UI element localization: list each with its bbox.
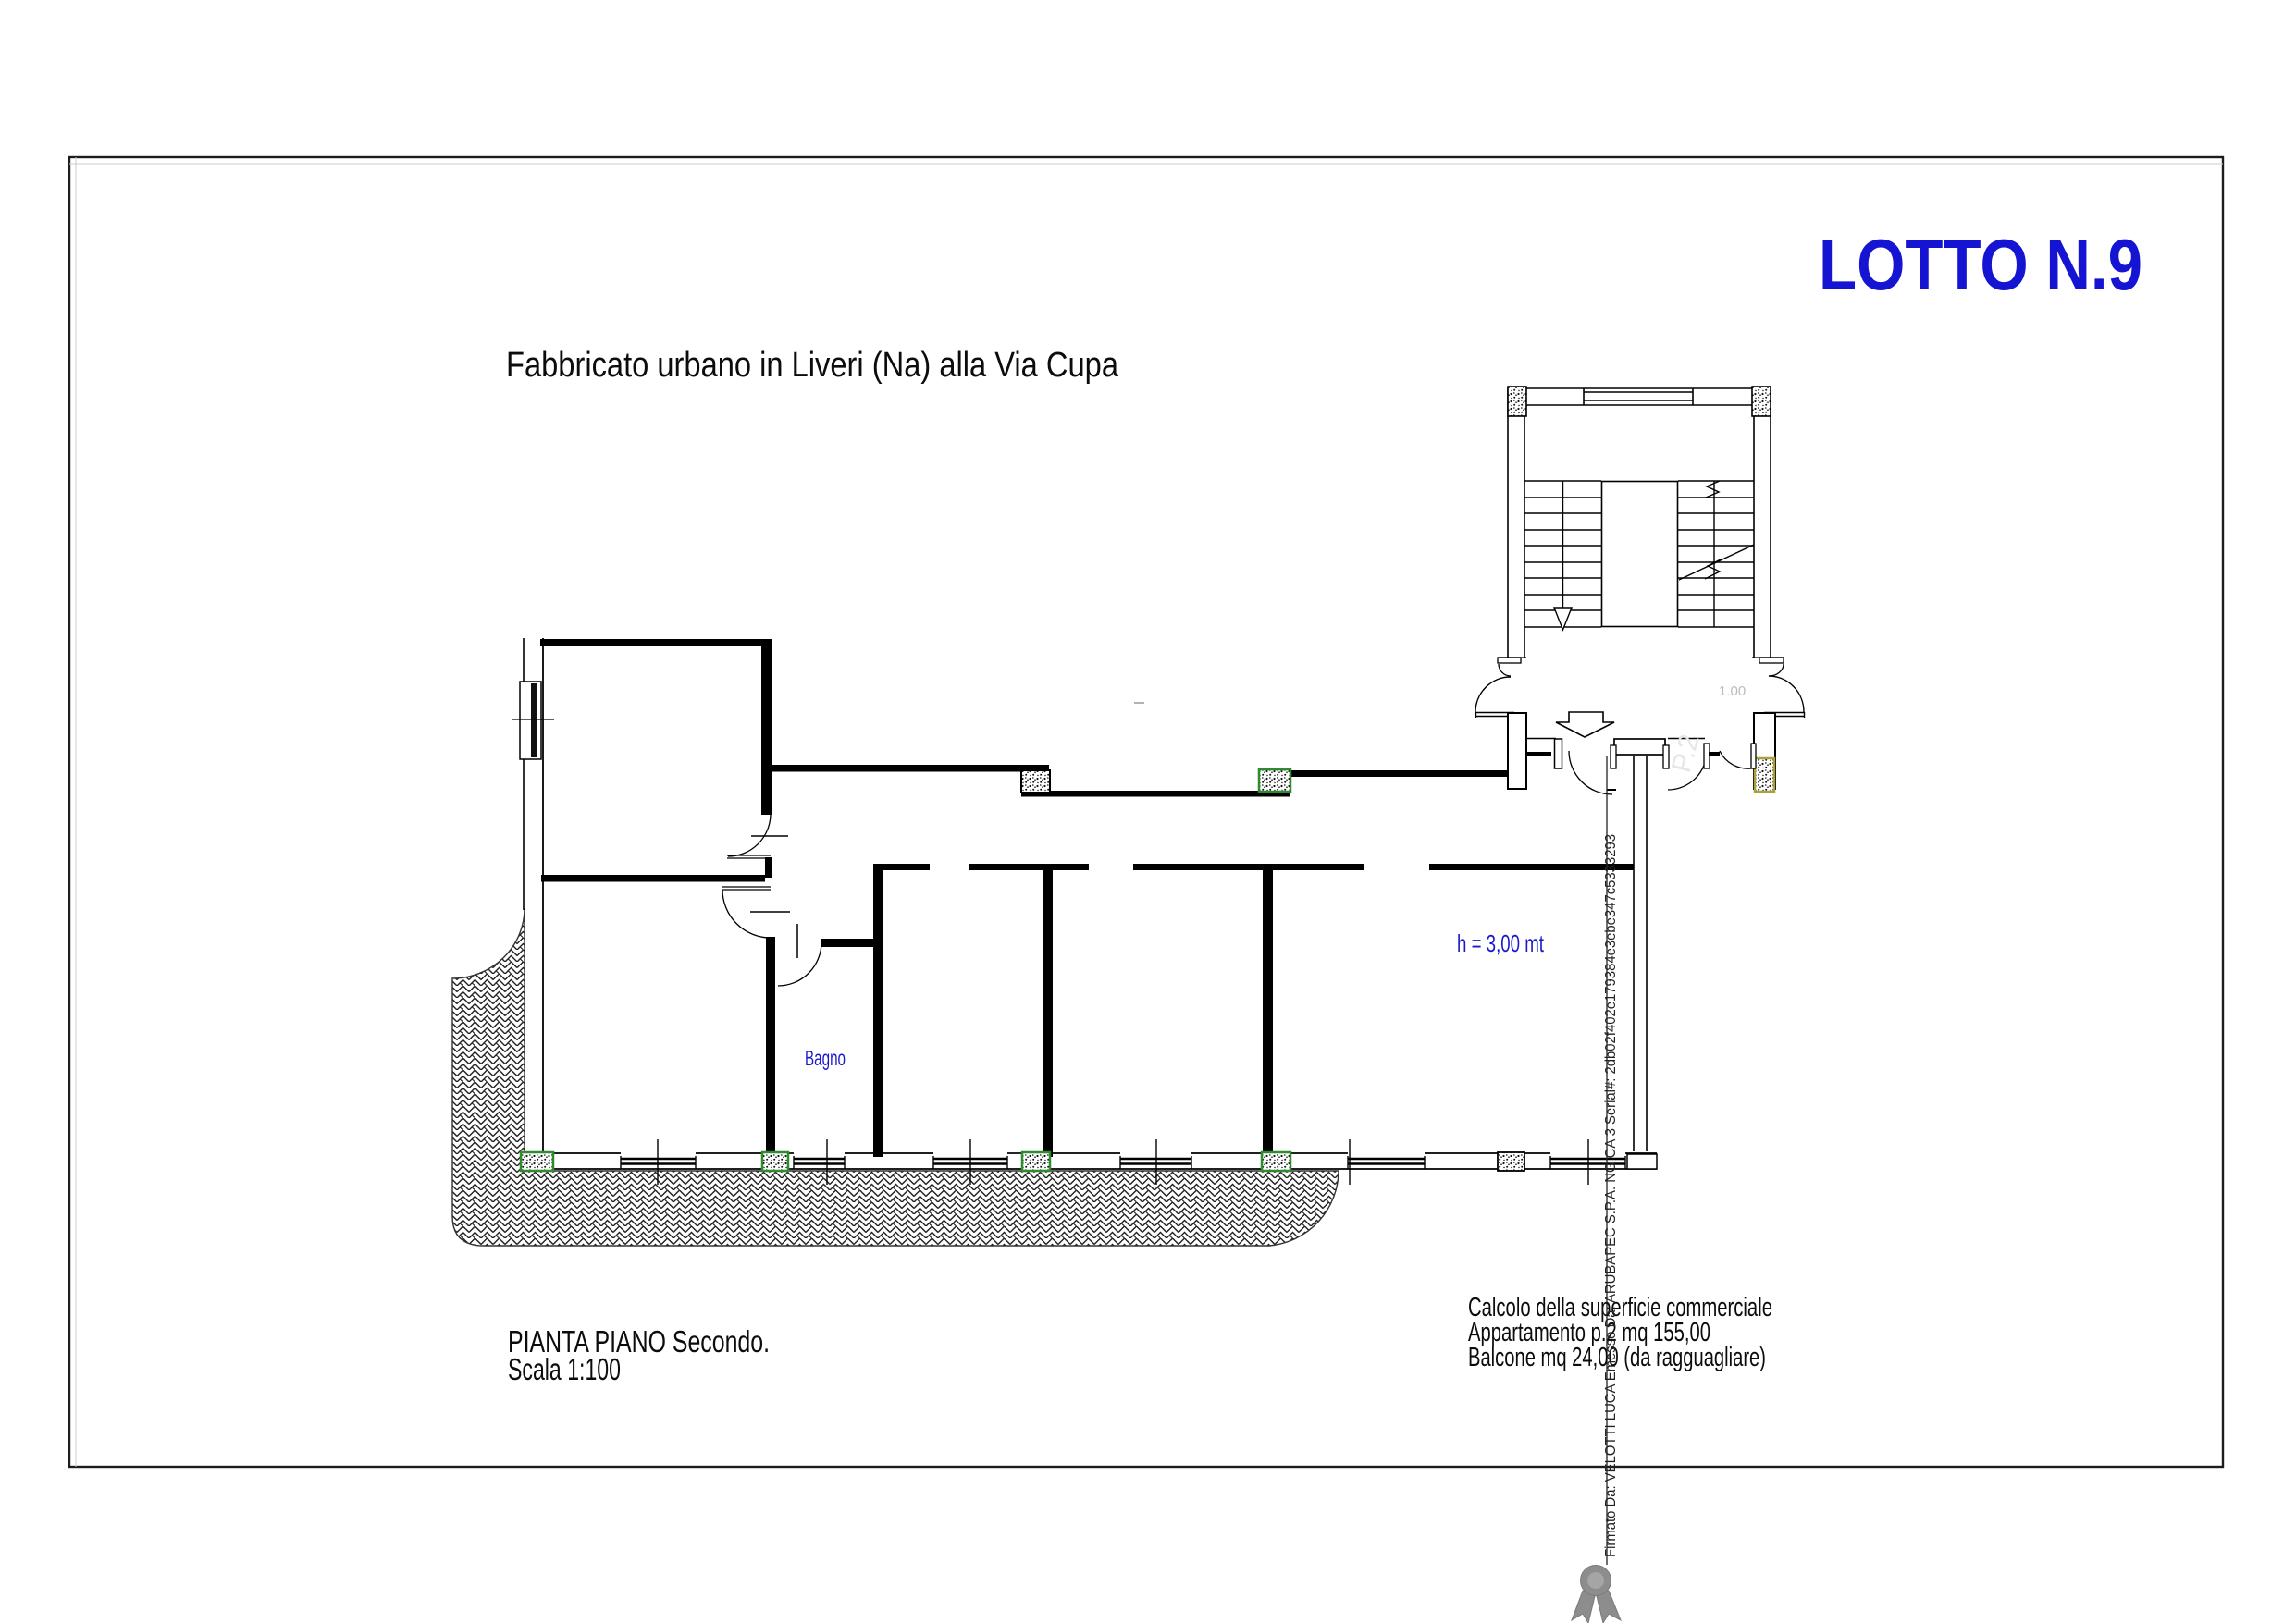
svg-text:Bagno: Bagno [805, 1046, 846, 1070]
svg-text:Fabbricato urbano in Liveri (N: Fabbricato urbano in Liveri (Na) alla Vi… [506, 346, 1119, 385]
svg-text:1.00: 1.00 [1719, 683, 1746, 699]
svg-text:Scala 1:100: Scala 1:100 [508, 1352, 621, 1386]
svg-text:h = 3,00 mt: h = 3,00 mt [1457, 929, 1545, 957]
svg-text:LOTTO N.9: LOTTO N.9 [1819, 224, 2142, 305]
svg-text:Firmato Da: VELOTTI LUCA Emess: Firmato Da: VELOTTI LUCA Emesso Da: ARUB… [1603, 834, 1619, 1557]
